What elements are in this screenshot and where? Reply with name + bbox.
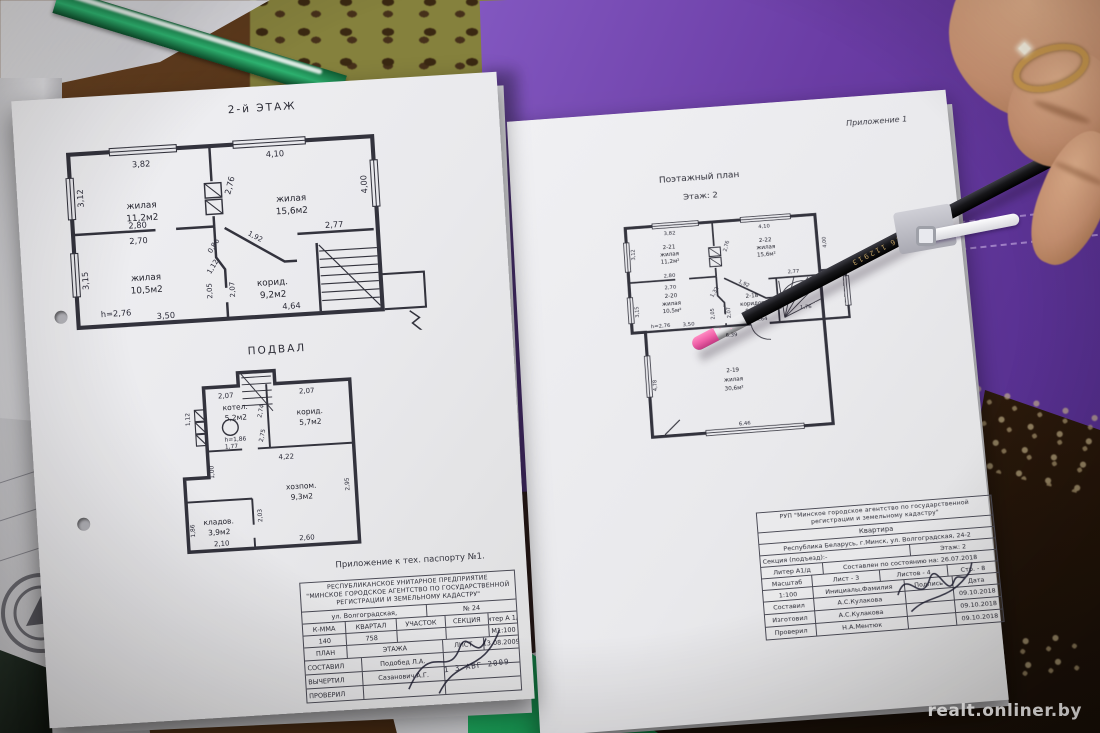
dim-label: 3,12 [630,249,637,260]
dim-label: 3,12 [75,189,86,208]
room-area: 15,6м2 [276,206,309,218]
room-area: 11,2м² [660,258,679,266]
dim-label: 2,77 [325,219,344,230]
room-name: котел. [222,402,248,413]
room-code: 2-18 [745,293,758,300]
dim-label: 4,10 [265,148,284,159]
dim-label: 2,70 [664,285,677,292]
room-area: 10,5м2 [130,285,163,297]
right-page-title: Поэтажный план [605,166,794,190]
dim-label: h=2,76 [651,323,672,330]
room-area: 30,6м² [724,385,744,393]
dim-label: 2,75 [259,428,268,442]
appendix-label: Приложение 1 [846,115,908,128]
dim-label: 1,00 [209,465,216,479]
room-name: жилая [276,193,307,205]
dim-label: 2,80 [128,220,147,231]
room-name: жилая [131,272,162,284]
room-name: хозпом. [286,481,317,492]
dim-label: 1,86 [190,524,197,538]
room-area: 9,2м2 [260,290,287,302]
room-name: жилая [660,251,679,258]
left-page: 2-й ЭТАЖ [11,72,534,728]
dim-label: 6,46 [739,421,752,428]
room-code: 2-21 [663,244,676,251]
basement-plan: котел. 5,2м2 корид. 5,7м2 хозпом. 9,3м2 … [150,356,380,574]
room-name: жилая [724,377,744,384]
right-title-block: РУП "Минское городское агентство по госу… [756,495,1005,641]
room-name: корид. [296,406,323,417]
room-code: 2-20 [665,293,678,300]
floor2-plan: жилая 11,2м2 жилая 15,6м2 жилая 10,5м2 к… [51,110,446,352]
dim-label: 3,82 [664,231,676,237]
dim-label: 2,10 [214,539,230,548]
scale-value: М1:100 [489,624,518,637]
watermark: realt.onliner.by [927,701,1082,721]
room-name: жилая [126,200,157,212]
dim-label: 3,50 [683,322,696,329]
room-area: 15,6м² [757,251,776,259]
role-label: ПРОВЕРИЛ [307,686,365,702]
role-date: 09.10.2018 [956,609,1003,624]
dim-label: 2,77 [787,269,799,275]
dim-label: 4,78 [653,379,660,391]
room-code: 2-19 [726,368,740,375]
left-title-block: РЕСПУБЛИКАНСКОЕ УНИТАРНОЕ ПРЕДПРИЯТИЕ "М… [299,570,522,704]
dim-label: 1,12 [185,413,192,427]
dim-label: 2,74 [257,404,266,418]
dim-label: 2,76 [222,175,236,195]
room-name: жилая [662,301,681,308]
dim-label: h=1,86 [224,436,246,443]
dim-label: 3,50 [156,310,175,321]
dim-label: 2,07 [299,387,315,396]
dim-label: 3,15 [634,306,641,318]
dim-label: 4,00 [358,175,369,194]
dim-label: 2,07 [227,281,237,297]
dim-label: 4,64 [282,300,301,311]
dim-label: 2,76 [723,240,732,253]
dim-label: 2,70 [129,235,148,246]
room-area: 3,9м2 [208,527,231,537]
dim-label: 2,80 [664,273,677,280]
dim-label: h=2,76 [101,307,132,319]
dim-label: 3,82 [132,158,151,169]
folder-fastener-clip [916,226,936,246]
dim-label: 2,60 [299,533,315,542]
room-name: корид. [257,277,289,289]
dim-label: 2,03 [258,509,265,523]
photo-scene: Минского го ток с ним и 09600103, и испр… [0,0,1100,733]
dim-label: 0,86 [205,236,221,254]
dim-label: 1,77 [225,444,239,451]
room-area: 9,3м2 [290,491,313,501]
room-name: жилая [756,244,775,251]
dim-label: 4,10 [758,223,771,229]
date: 13.08.2009 [484,635,519,649]
room-code: 2-22 [759,237,772,244]
right-page: Приложение 1 Поэтажный план Этаж: 2 [507,90,1009,733]
dim-label: 4,00 [821,236,828,248]
role-label: Проверил [766,624,817,640]
dim-label: 2,07 [218,392,234,401]
room-area: 5,2м2 [224,412,247,422]
room-area: 10,5м² [662,307,681,315]
punch-hole [77,517,91,531]
dim-label: 2,95 [345,477,352,491]
dim-label: 4,22 [278,452,294,461]
room-name: кладов. [203,516,234,527]
dim-label: 3,15 [80,271,91,290]
room-area: 5,7м2 [299,417,322,427]
dim-label: 2,05 [710,308,717,320]
dim-label: 2,05 [204,283,214,299]
liter: литер А 1/д [488,612,517,625]
